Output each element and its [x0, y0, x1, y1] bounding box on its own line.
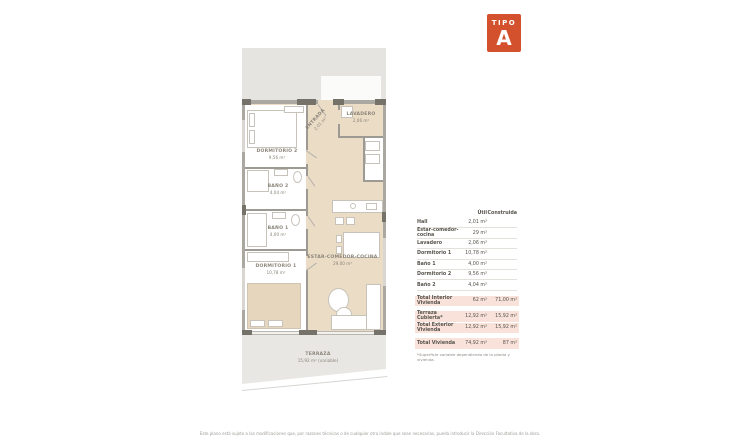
wall-dorm2-bano2 [245, 167, 306, 169]
sofa-vertical [366, 284, 381, 330]
wall-bano2-bano1 [245, 209, 306, 211]
table-row: Dormitorio 2 9,56 m² [417, 270, 517, 280]
pillow-icon [249, 113, 255, 127]
table-row: Lavadero 2,06 m² [417, 239, 517, 249]
label-terraza: TERRAZA 15,92 m² (variable) [288, 352, 348, 363]
row-total-interior: Total Interior Vivienda 62 m² 71,00 m² [415, 296, 519, 307]
sink-icon [274, 169, 288, 176]
label-lavadero: LAVADERO 2,06 m² [340, 112, 382, 123]
table-footnote: *Superficie variable dependiendo de la p… [417, 352, 517, 362]
label-bano1: BAÑO 1 4,00 m² [258, 226, 298, 237]
kitchen-sink-icon [350, 203, 356, 209]
row-total-vivienda: Total Vivienda 74,92 m² 87 m² [415, 338, 519, 349]
window-living [383, 238, 386, 286]
pillow-icon [268, 320, 283, 327]
wardrobe-dormitorio1 [247, 252, 289, 262]
plan-sheet: DORMITORIO 2 9,56 m² ENTRADA 2,01 m² LAV… [0, 0, 740, 445]
header-util: Útil [462, 211, 487, 216]
wall-utility-v [363, 138, 365, 180]
pillar [333, 99, 344, 105]
wall-utility-h [363, 180, 383, 182]
upper-building-inset [321, 76, 381, 101]
pillar [242, 205, 246, 215]
table-row: Hall 2,01 m² [417, 218, 517, 228]
appliance-icon [365, 141, 380, 151]
label-estar-comedor-cocina: ESTAR-COMEDOR-COCINA 29,00 m² [305, 255, 380, 266]
pillar [242, 99, 251, 105]
stool-icon [335, 217, 344, 225]
table-row: Baño 1 4,00 m² [417, 260, 517, 270]
chair-icon [336, 235, 342, 243]
table-row: Baño 2 4,04 m² [417, 280, 517, 290]
stool-icon [346, 217, 355, 225]
badge-letter: A [487, 28, 521, 48]
sofa-horizontal [331, 315, 367, 330]
pillar [382, 212, 386, 222]
wall-lavadero-h [338, 136, 384, 138]
label-dormitorio2: DORMITORIO 2 9,56 m² [252, 149, 302, 160]
table-row: Estar-comedor-cocina 29 m² [417, 228, 517, 238]
wardrobe-dormitorio2 [284, 106, 304, 113]
row-terraza-cubierta: Terraza Cubierta* 12,92 m² 15,92 m² [415, 311, 519, 322]
row-total-exterior: Total Exterior Vivienda 12,92 m² 15,92 m… [415, 323, 519, 334]
label-bano2: BAÑO 2 4,04 m² [258, 184, 298, 195]
pillow-icon [249, 130, 255, 144]
pillar [297, 99, 316, 105]
type-badge: TIPO A [487, 14, 521, 52]
wall-bano1-dorm1 [245, 249, 306, 251]
window-dormitorio1 [242, 268, 245, 310]
pillar [375, 99, 386, 105]
hob-icon [366, 203, 377, 210]
appliance-icon [365, 154, 380, 164]
disclaimer-text: Este plano está sujeto a las modificacio… [170, 431, 570, 436]
table-header: Útil Construida [417, 209, 517, 218]
toilet-icon [293, 171, 302, 183]
table-row: Dormitorio 1 10,78 m² [417, 249, 517, 259]
sink-icon [272, 212, 286, 219]
terrace-glass-door [317, 331, 374, 335]
areas-table: Útil Construida Hall 2,01 m² Estar-comed… [417, 209, 517, 362]
header-construida: Construida [487, 211, 517, 216]
pillow-icon [250, 320, 265, 327]
label-dormitorio1: DORMITORIO 1 10,78 m² [251, 264, 301, 275]
terrace-glass-door [252, 331, 299, 335]
window-dormitorio2 [242, 120, 245, 152]
chair-icon [336, 246, 342, 254]
toilet-icon [291, 214, 300, 226]
